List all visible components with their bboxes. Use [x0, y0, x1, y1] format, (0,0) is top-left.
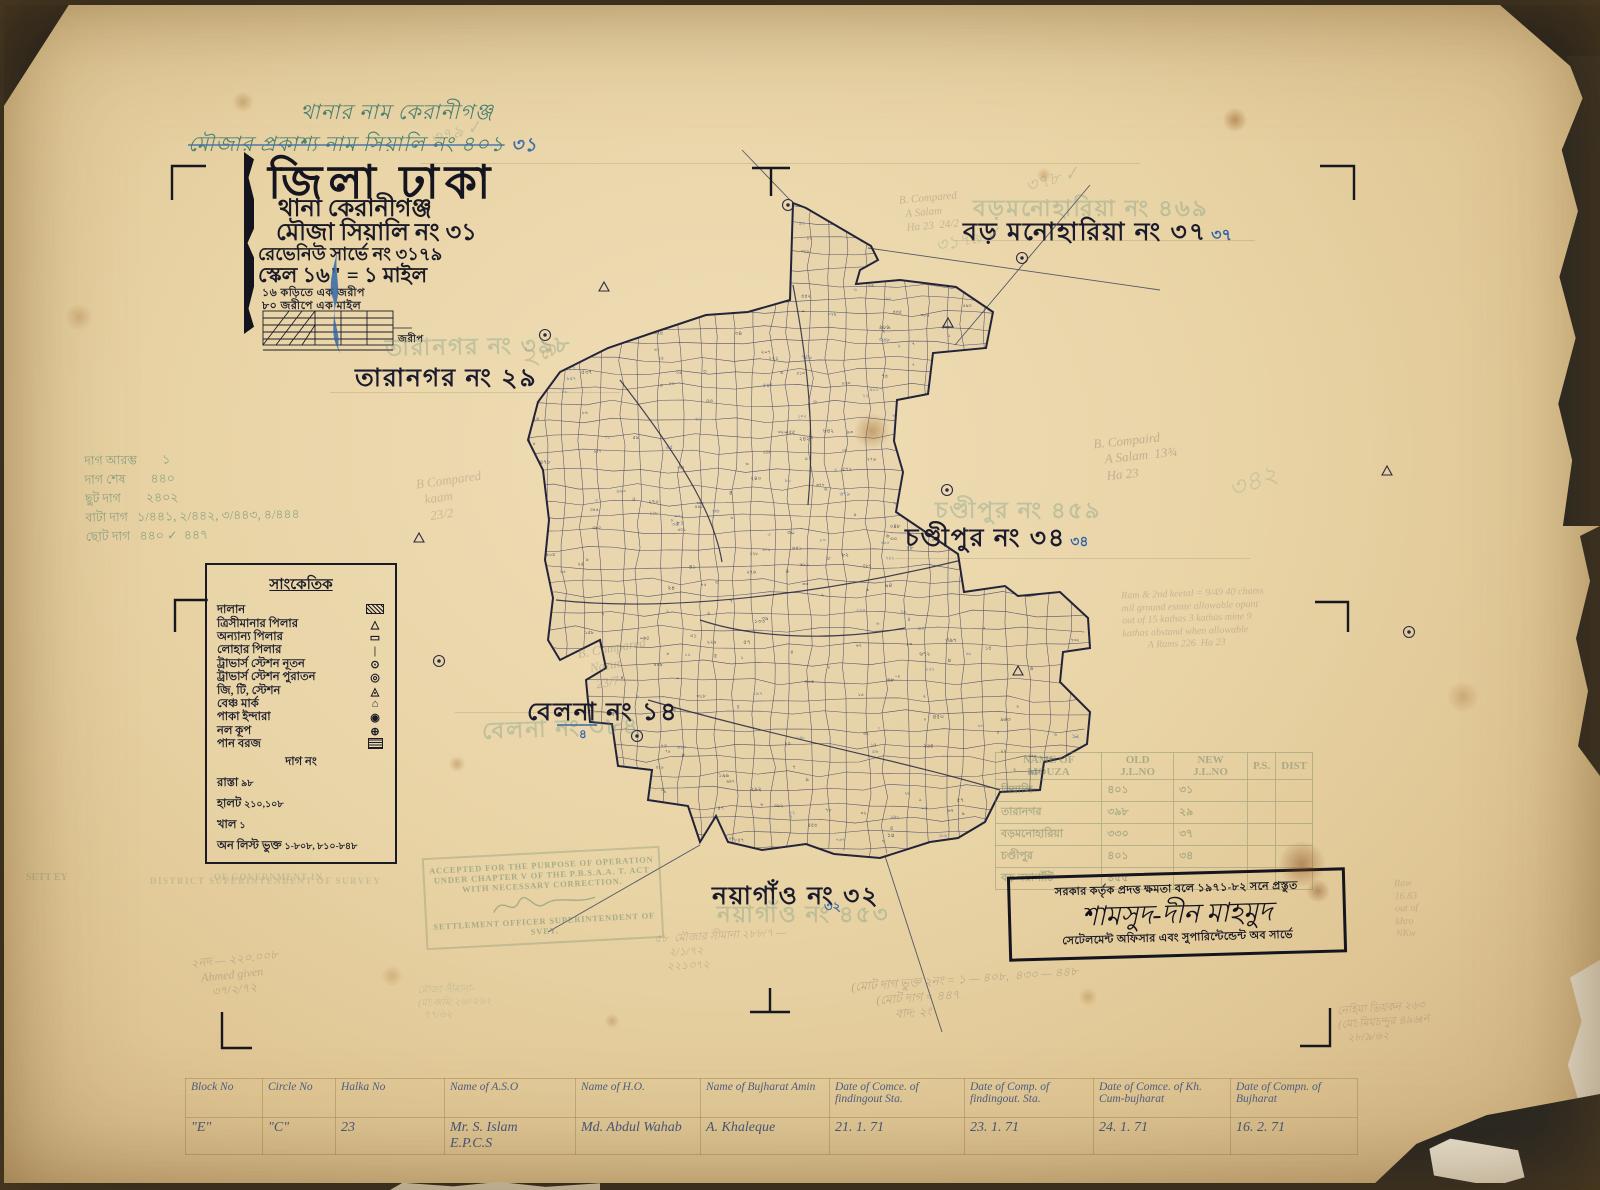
- scan-edge-top: [0, 0, 1600, 5]
- mouza-table-cell: ৪০১: [1102, 780, 1174, 802]
- label-belna-blue: ৪: [579, 726, 587, 746]
- svg-text:৯১: ৯১: [1026, 361, 1032, 366]
- legend-extra-row: দাগ নং: [217, 753, 385, 772]
- svg-text:৬৩: ৬৩: [509, 641, 517, 647]
- svg-text:৫২৪: ৫২৪: [1053, 298, 1062, 303]
- svg-text:০: ০: [833, 218, 836, 223]
- mouza-table-cell: সিয়ালি: [996, 780, 1102, 802]
- mouza-table-cell: ৩৪: [1174, 846, 1248, 868]
- svg-text:৯: ৯: [1020, 367, 1023, 372]
- svg-text:১৫: ১৫: [1104, 652, 1110, 657]
- svg-text:৫৯: ৫৯: [615, 804, 621, 809]
- svg-text:২: ২: [1004, 466, 1007, 471]
- record-table-value: "C": [263, 1118, 336, 1155]
- label-taranagar: তারানগর নং ৩৯৮ তারানগর নং ২৯: [355, 358, 538, 401]
- svg-text:৭: ৭: [531, 214, 535, 220]
- svg-text:৯৪: ৯৪: [625, 783, 631, 788]
- svg-text:৬: ৬: [560, 301, 564, 307]
- svg-text:৬: ৬: [554, 315, 558, 321]
- mouza-new-jl-number: ৩১: [511, 135, 538, 156]
- svg-text:৪২: ৪২: [540, 302, 547, 308]
- svg-text:০৪: ০৪: [552, 766, 559, 772]
- svg-text:৩৩: ৩৩: [692, 309, 699, 314]
- record-table-value: Md. Abdul Wahab: [576, 1118, 701, 1155]
- mouza-table-cell: [1247, 802, 1275, 824]
- svg-text:৮৭৭: ৮৭৭: [1071, 440, 1080, 445]
- svg-text:৫৯৯: ৫৯৯: [719, 857, 728, 862]
- svg-text:১৩: ১৩: [587, 302, 593, 307]
- svg-text:৪: ৪: [1031, 339, 1034, 344]
- svg-text:৪৫৩: ৪৫৩: [904, 242, 914, 247]
- svg-text:৪৬৭: ৪৬৭: [505, 294, 513, 299]
- svg-text:৯১: ৯১: [552, 232, 559, 238]
- record-table-value: A. Khaleque: [701, 1118, 830, 1155]
- svg-text:৮৮০: ৮৮০: [724, 220, 735, 226]
- svg-text:১৯: ১৯: [531, 559, 538, 565]
- record-table-header: Block No: [186, 1079, 263, 1118]
- svg-text:৭১২: ৭১২: [517, 230, 528, 236]
- legend-extra-row: অন লিস্ট ভুক্ত ১-৮০৮, ৮১০-৮৪৮: [217, 837, 385, 856]
- svg-text:৪: ৪: [837, 220, 840, 225]
- svg-text:৩৩৮: ৩৩৮: [839, 862, 850, 868]
- pencil-note: নেহিমা ভিয়কন ২৬৩ (মো:মিয়চন্দুর ৪৯৬tন ২…: [1337, 999, 1431, 1047]
- svg-text:১৯৯: ১৯৯: [982, 373, 993, 379]
- record-table-value: 24. 1. 71: [1094, 1118, 1231, 1155]
- svg-text:৭৩৭: ৭৩৭: [661, 205, 670, 210]
- legend-row-label: পান বরজ: [217, 735, 261, 754]
- svg-text:৩: ৩: [523, 512, 526, 517]
- svg-text:৫১৯: ৫১৯: [679, 305, 689, 310]
- svg-text:৫: ৫: [630, 825, 633, 830]
- svg-text:৮: ৮: [722, 221, 726, 226]
- pencil-note: B Compared kaam 23/2: [415, 468, 487, 525]
- svg-text:৩৪৫: ৩৪৫: [615, 215, 624, 220]
- svg-text:১১২: ১১২: [958, 449, 967, 454]
- svg-text:৪২৮: ৪২৮: [978, 477, 989, 483]
- legend-symbol-glyph: ⊙: [365, 658, 385, 671]
- mouza-table-cell: ৩৩০: [1102, 824, 1174, 846]
- svg-text:০: ০: [513, 530, 516, 535]
- svg-text:১০১: ১০১: [695, 860, 705, 865]
- svg-text:৪২: ৪২: [1015, 375, 1021, 380]
- legend-extra-value: ৯৮: [241, 779, 253, 789]
- svg-text:৭৯: ৭৯: [917, 465, 923, 470]
- svg-text:৮: ৮: [1011, 367, 1015, 373]
- svg-text:৪৬৮: ৪৬৮: [544, 816, 555, 822]
- svg-text:২২৮: ২২৮: [1049, 423, 1060, 429]
- pencil-note: ৫৮ মৌজার সীমানা ২৮৮/৭ — ২/১/৭২ ২২১৩৭২: [654, 927, 788, 975]
- scan-edge-bottom: [0, 1183, 1600, 1190]
- legend-box: সাংকেতিক দালানত্রিসীমানার পিলার△অন্যান্য…: [205, 563, 397, 864]
- legend-extra-row: খাল ১: [217, 816, 385, 835]
- label-nayagaon: নয়াগাঁও নং ৪৫৩ নয়াগাঁও নং ৩২ ৩২: [712, 876, 880, 919]
- svg-text:৯২: ৯২: [1081, 656, 1087, 661]
- svg-text:৯০: ৯০: [551, 669, 557, 674]
- svg-text:৯৫২: ৯৫২: [1051, 440, 1061, 446]
- belna-blue-underline: [557, 724, 597, 726]
- mouza-table-cell: ২৯: [1174, 802, 1248, 824]
- svg-text:৫৫: ৫৫: [980, 265, 986, 270]
- mouza-table-cell: বড়মনোহারিয়া: [996, 824, 1102, 846]
- record-table-header: Date of Comp. of findingout. Sta.: [965, 1079, 1094, 1118]
- svg-text:৬১০: ৬১০: [1101, 363, 1110, 368]
- label-belna-ghost: বেলনা নং ৩৮৪: [481, 707, 640, 751]
- svg-text:০৭: ০৭: [966, 353, 972, 358]
- svg-text:৩: ৩: [509, 200, 513, 206]
- legend-row: পান বরজ: [217, 738, 385, 751]
- legend-symbol-glyph: ⊕: [365, 725, 385, 738]
- legend-symbol-building: [365, 604, 385, 617]
- mouza-table-header: DIST: [1276, 753, 1313, 780]
- mouza-table-header: NAME OF MOUZA: [996, 753, 1102, 780]
- svg-text:৫৫: ৫৫: [730, 220, 736, 225]
- mouza-table-cell: [1276, 802, 1313, 824]
- svg-text:৪৮৭: ৪৮৭: [549, 819, 558, 824]
- svg-text:৪৩: ৪৩: [1082, 427, 1089, 432]
- legend-symbol-glyph: △: [365, 618, 385, 631]
- svg-text:৯৮০: ৯৮০: [1002, 373, 1010, 378]
- legend-rows: দালানত্রিসীমানার পিলার△অন্যান্য পিলার▭লো…: [217, 604, 385, 751]
- svg-text:১৬৪: ১৬৪: [937, 402, 945, 407]
- legend-symbol-pan-baraj: [365, 738, 385, 752]
- svg-text:৬: ৬: [1016, 340, 1020, 346]
- svg-text:৪: ৪: [929, 471, 932, 476]
- mouza-table-cell: [1276, 780, 1313, 802]
- pencil-note: B. Compaird A Salam 13¾ Ha 23: [1093, 428, 1180, 485]
- label-baramanohariya: বড়মনোহারিয়া নং ৪৬৯ বড় মনোহারিয়া নং ৩…: [963, 212, 1232, 255]
- svg-text:৭৪৬: ৭৪৬: [977, 371, 988, 377]
- label-baramanohariya-ghost: বড়মনোহারিয়া নং ৪৬৯: [973, 190, 1209, 229]
- svg-text:৬৫: ৬৫: [1081, 478, 1087, 483]
- pencil-note: Ram & 2nd keetal = 9/49 40 chams mil gro…: [1121, 586, 1266, 653]
- svg-text:৭০১: ৭০১: [583, 213, 592, 218]
- svg-text:১: ১: [715, 864, 719, 870]
- scanned-cadastral-map-sheet: ৮৪৯০৬৭৭৯৯৩৮২৯১৮৩৫৯০০৭৮১১৫৬৪৬৯১৫১৬৪৭৫৯৪৫২…: [0, 0, 1600, 1190]
- district-ghost-stamp: DISTRICT SUPERINTENDENT OF SURVEY: [150, 876, 381, 886]
- svg-text:৮৪৯: ৮৪৯: [516, 760, 527, 766]
- mouza-table-cell: [1247, 780, 1275, 802]
- svg-text:২৬০: ২৬০: [1068, 427, 1077, 432]
- svg-text:৫২: ৫২: [739, 303, 745, 308]
- mouza-table-cell: ৩৭: [1174, 824, 1248, 846]
- svg-text:৯৪: ৯৪: [510, 457, 516, 462]
- mouza-table-cell: ৩৯৮: [1102, 802, 1174, 824]
- svg-text:৯৩: ৯৩: [978, 865, 986, 871]
- svg-text:৪৯৭: ৪৯৭: [1077, 261, 1085, 266]
- mouza-table-row: বড়মনোহারিয়া৩৩০৩৭: [996, 824, 1313, 846]
- record-table-value: 23. 1. 71: [965, 1118, 1094, 1155]
- svg-text:৮৭: ৮৭: [927, 463, 934, 469]
- svg-text:৩২: ৩২: [691, 268, 698, 274]
- svg-text:৩: ৩: [510, 817, 513, 822]
- label-taranagar-text: তারানগর নং ২৯: [355, 365, 538, 392]
- svg-text:৭৫: ৭৫: [723, 233, 731, 239]
- pencil-note: Raw 16.83 out of khro NKw: [1394, 878, 1419, 941]
- svg-text:৯৮০: ৯৮০: [918, 498, 927, 503]
- svg-text:৫০০: ৫০০: [1087, 327, 1098, 333]
- label-chandipur-ghost: চণ্ডীপুর নং ৪৫৯: [935, 492, 1102, 531]
- blue-ink-brush-mark: [326, 248, 352, 354]
- svg-text:৬৯৯: ৬৯৯: [554, 791, 565, 797]
- svg-text:৬: ৬: [970, 255, 973, 260]
- mouza-table-header: P.S.: [1247, 753, 1275, 780]
- mouza-table-row: চণ্ডীপুর৪০১৩৪: [996, 846, 1313, 868]
- mouza-table-cell: চণ্ডীপুর: [996, 846, 1102, 868]
- svg-text:৮৭২: ৮৭২: [917, 848, 928, 854]
- record-table-header: Circle No: [263, 1079, 336, 1118]
- pencil-note: B. Compared A Salam Ha 23 24/2: [898, 190, 960, 236]
- mouza-table-header: NEW J.L.NO: [1174, 753, 1248, 780]
- scan-edge-left: [0, 0, 4, 1190]
- svg-text:২: ২: [679, 843, 682, 848]
- svg-text:০১৯: ০১৯: [526, 315, 535, 320]
- svg-text:৬৯৯: ৬৯৯: [704, 215, 715, 221]
- mouza-table-cell: ৪০১: [1102, 846, 1174, 868]
- svg-text:৬৫: ৬৫: [680, 280, 686, 285]
- legend-symbol-glyph: ⌂: [365, 698, 385, 710]
- svg-text:৪১৬: ৪১৬: [572, 257, 582, 262]
- record-table-value: 21. 1. 71: [830, 1118, 965, 1155]
- svg-text:৪৫৩: ৪৫৩: [1030, 459, 1040, 464]
- mouza-table-cell: [1247, 846, 1275, 868]
- svg-text:৫: ৫: [942, 439, 945, 444]
- svg-text:৩৭: ৩৭: [1011, 407, 1019, 413]
- label-baramanohariya-blue: ৩৭: [1211, 227, 1232, 244]
- svg-text:০৩: ০৩: [735, 244, 741, 249]
- svg-text:৩: ৩: [994, 461, 997, 466]
- svg-text:০: ০: [845, 220, 848, 225]
- svg-text:৯৭৭: ৯৭৭: [1107, 329, 1118, 335]
- svg-text:১৭৪: ১৭৪: [693, 308, 702, 313]
- svg-text:৮৩: ৮৩: [532, 787, 539, 792]
- record-table-value: 16. 2. 71: [1231, 1118, 1358, 1155]
- mouza-table-cell: [1276, 824, 1313, 846]
- legend-symbol-glyph: ◬: [365, 685, 385, 698]
- legend-symbol-glyph: ▭: [365, 631, 385, 644]
- svg-text:০৯৮: ০৯৮: [1070, 671, 1081, 677]
- svg-text:৯০: ৯০: [542, 249, 548, 254]
- legend-title: সাংকেতিক: [217, 573, 385, 598]
- svg-text:৭০: ৭০: [682, 252, 689, 257]
- svg-text:৪৮: ৪৮: [740, 204, 746, 209]
- record-table-header: Name of A.S.O: [445, 1079, 576, 1118]
- svg-text:৬৫: ৬৫: [619, 317, 626, 323]
- mouza-table-row: সিয়ালি৪০১৩১: [996, 780, 1313, 802]
- svg-text:৫৫৯: ৫৫৯: [1066, 365, 1075, 370]
- svg-text:০: ০: [573, 764, 576, 769]
- svg-text:৩০: ৩০: [632, 824, 640, 830]
- svg-text:০: ০: [922, 452, 925, 457]
- record-table-header: Date of Comce. of Kh. Cum-bujharat: [1094, 1079, 1231, 1118]
- accepted-stamp: ACCEPTED FOR THE PURPOSE OF OPERATION UN…: [422, 846, 664, 950]
- svg-text:৬: ৬: [1058, 293, 1062, 299]
- mouza-table-header: OLD J.L.NO: [1102, 753, 1174, 780]
- record-table-value: 23: [336, 1118, 445, 1155]
- svg-text:২৩২: ২৩২: [905, 434, 915, 439]
- svg-text:৩: ৩: [902, 408, 906, 414]
- svg-text:৮: ৮: [630, 303, 634, 308]
- record-table-value: Mr. S. Islam E.P.C.S: [445, 1118, 576, 1155]
- svg-text:২: ২: [1059, 309, 1062, 314]
- legend-extra-row: হালট ২১০,১০৮: [217, 795, 385, 814]
- svg-text:৬৯৩: ৬৯৩: [514, 696, 524, 701]
- record-table-header: Name of H.O.: [576, 1079, 701, 1118]
- svg-text:১৬১: ১৬১: [715, 208, 726, 214]
- label-nayagaon-blue: ৩২: [824, 898, 841, 919]
- legend-extra-value: ১-৮০৮, ৮১০-৮৪৮: [285, 842, 358, 852]
- svg-text:৮৪৯: ৮৪৯: [675, 300, 684, 305]
- svg-text:৬৯: ৬৯: [609, 808, 615, 813]
- survey-record-table: Block NoCircle NoHalka NoName of A.S.ONa…: [185, 1078, 1358, 1155]
- legend-extra-value: ২১০,১০৮: [244, 800, 283, 810]
- svg-text:৬: ৬: [1033, 585, 1037, 590]
- svg-text:৫৩: ৫৩: [567, 814, 574, 819]
- sett-ghost-stamp: SETT EY: [26, 872, 68, 883]
- svg-text:৬৫৬: ৬৫৬: [655, 322, 665, 327]
- record-table-value: "E": [186, 1118, 263, 1155]
- svg-text:৭৭: ৭৭: [1103, 272, 1109, 277]
- svg-text:৭৪: ৭৪: [605, 312, 612, 318]
- mouza-table-row: তারানগর৩৯৮২৯: [996, 802, 1313, 824]
- svg-text:৬১: ৬১: [840, 201, 847, 207]
- legend-extra-value: ১: [239, 821, 245, 831]
- label-belna: বেলনা নং ৩৮৪ বেলনা নং ১৪ ৪: [527, 692, 679, 735]
- record-table-header: Halka No: [336, 1079, 445, 1118]
- svg-text:৪৪: ৪৪: [1081, 355, 1088, 360]
- pencil-note: মৌজা সীমানা- (মা:অমি:২৬//২৬২ ৭৭/৬২: [417, 983, 492, 1023]
- record-table-header: Date of Compn. of Bujharat: [1231, 1079, 1358, 1118]
- svg-text:৩০৩: ৩০৩: [897, 255, 908, 261]
- svg-text:৭: ৭: [1094, 561, 1097, 566]
- svg-text:১: ১: [576, 806, 580, 812]
- svg-text:৩৮: ৩৮: [763, 252, 770, 257]
- legend-symbol-glyph: ◉: [365, 711, 385, 724]
- label-chandipur-blue: ৩৪: [1070, 535, 1088, 550]
- svg-text:৮৭৮: ৮৭৮: [746, 224, 757, 230]
- mouza-table-cell: [1276, 846, 1313, 868]
- preparation-stamp-box: সরকার কর্তৃক প্রদত্ত ক্ষমতা বলে ১৯৭১-৮২ …: [1007, 867, 1347, 961]
- record-table-header: Date of Comce. of findingout Sta.: [830, 1079, 965, 1118]
- svg-text:০১: ০১: [572, 820, 580, 826]
- svg-text:৫: ৫: [1080, 655, 1083, 660]
- mouza-table-cell: ৩১: [1174, 780, 1248, 802]
- svg-text:২: ২: [588, 768, 591, 773]
- svg-text:৭: ৭: [711, 236, 714, 241]
- record-table-header: Name of Bujharat Amin: [701, 1079, 830, 1118]
- svg-text:৭৪৪: ৭৪৪: [981, 378, 990, 383]
- legend-extra-row: রাস্তা ৯৮: [217, 774, 385, 793]
- mouza-table-cell: তারানগর: [996, 802, 1102, 824]
- dag-notes-green: দাগ আরম্ভ ১ দাগ শেষ ৪৪০ ছুট দাগ ২৪০২ বাট…: [84, 448, 300, 547]
- svg-text:১৭: ১৭: [1097, 687, 1104, 692]
- mouza-table-cell: [1247, 824, 1275, 846]
- svg-text:৬৯৪: ৬৯৪: [825, 211, 835, 216]
- label-chandipur: চণ্ডীপুর নং ৪৫৯ চণ্ডীপুর নং ৩৪ ৩৪: [905, 518, 1088, 561]
- svg-text:২৮৭: ২৮৭: [1078, 386, 1088, 392]
- svg-text:৫: ৫: [1003, 400, 1006, 406]
- svg-text:১: ১: [1099, 335, 1103, 341]
- legend-extra-rows: দাগ নংরাস্তা ৯৮হালট ২১০,১০৮খাল ১অন লিস্ট…: [217, 753, 385, 856]
- pencil-note: ২নদ — ২২০.০০৮ Ahmed given ৩৭/২/৭২: [190, 948, 282, 1002]
- svg-text:৪২: ৪২: [784, 223, 792, 229]
- svg-text:৮৩৪: ৮৩৪: [930, 375, 940, 380]
- legend-symbol-glyph: ◎: [365, 671, 385, 684]
- svg-text:৮৪: ৮৪: [524, 656, 530, 661]
- legend-symbol-glyph: |: [365, 645, 385, 657]
